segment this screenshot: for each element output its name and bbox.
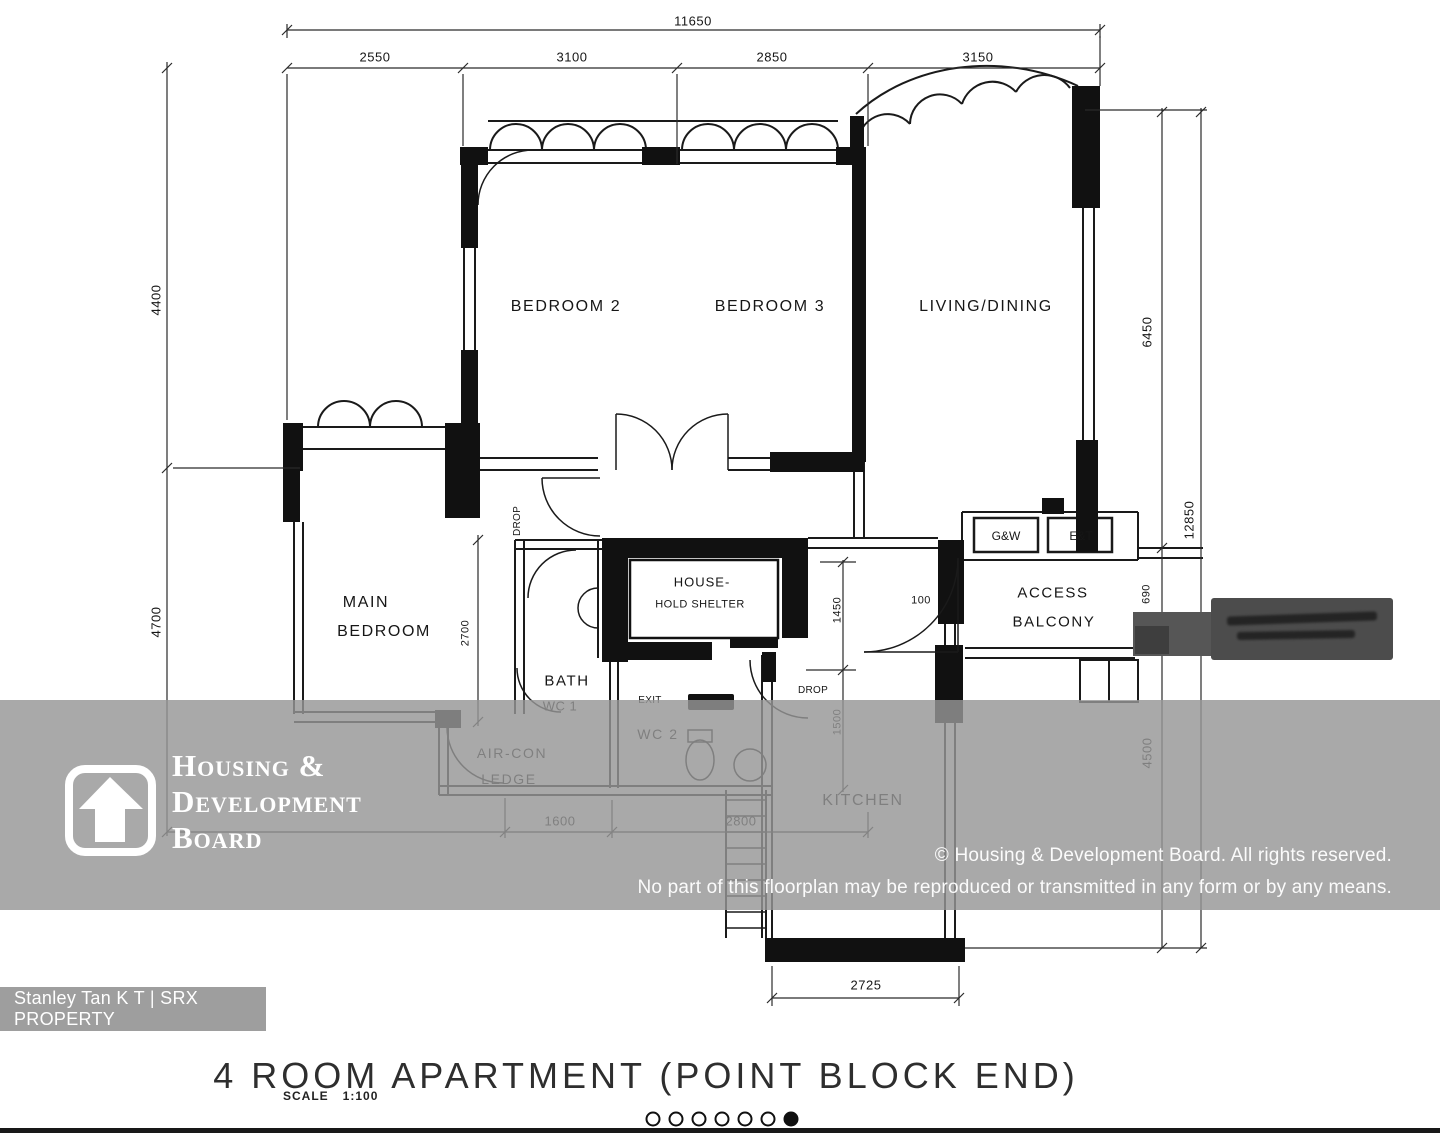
hdb-logo-icon bbox=[64, 764, 157, 857]
level-mark-label: 100 bbox=[911, 596, 931, 607]
sign-scribble bbox=[1227, 611, 1377, 625]
room-label-bedroom3: BEDROOM 3 bbox=[715, 299, 825, 315]
carousel-dot-6[interactable] bbox=[761, 1112, 776, 1127]
scale-label: SCALE bbox=[283, 1089, 329, 1103]
meter-label-et: E&T bbox=[1069, 530, 1092, 542]
dim-top-1: 2550 bbox=[360, 51, 391, 64]
dim-top-total: 11650 bbox=[674, 15, 712, 28]
dim-right-1: 6450 bbox=[1141, 317, 1154, 348]
agent-badge-text: Stanley Tan K T | SRX PROPERTY bbox=[14, 988, 266, 1030]
meter-label-gw: G&W bbox=[992, 530, 1021, 542]
copyright-line2: No part of this floorplan may be reprodu… bbox=[637, 872, 1392, 904]
room-label-access-2: BALCONY bbox=[1013, 615, 1096, 630]
hdb-text-line3: Board bbox=[172, 820, 362, 856]
room-label-household-1: HOUSE- bbox=[674, 576, 731, 589]
drop-label-kitchen: DROP bbox=[798, 686, 828, 696]
carousel-dots bbox=[646, 1112, 799, 1127]
carousel-dot-7[interactable] bbox=[784, 1112, 799, 1127]
dim-bath: 2700 bbox=[461, 620, 472, 646]
copyright-line1: © Housing & Development Board. All right… bbox=[637, 840, 1392, 872]
room-label-bath-1: BATH bbox=[544, 674, 589, 689]
corridor-sign-nub bbox=[1135, 626, 1169, 654]
dim-right-2: 690 bbox=[1142, 584, 1153, 604]
dim-right-total: 12850 bbox=[1183, 501, 1196, 540]
dim-left-1: 4400 bbox=[150, 285, 163, 316]
room-label-household-2: HOLD SHELTER bbox=[655, 600, 745, 611]
floorplan-drawing bbox=[0, 0, 1440, 1133]
bottom-bar bbox=[0, 1128, 1440, 1133]
room-label-living-dining: LIVING/DINING bbox=[919, 299, 1053, 315]
corridor-sign-large bbox=[1211, 598, 1393, 660]
room-label-main-bedroom-2: BEDROOM bbox=[337, 624, 431, 640]
dim-top-3: 2850 bbox=[757, 51, 788, 64]
drop-label-vertical: DROP bbox=[513, 506, 523, 536]
hdb-text-line2: Development bbox=[172, 784, 362, 820]
carousel-dot-1[interactable] bbox=[646, 1112, 661, 1127]
watermark-content: Housing & Development Board © Housing & … bbox=[0, 700, 1440, 910]
carousel-dot-2[interactable] bbox=[669, 1112, 684, 1127]
copyright-notice: © Housing & Development Board. All right… bbox=[637, 840, 1392, 904]
dim-top-4: 3150 bbox=[963, 51, 994, 64]
carousel-dot-3[interactable] bbox=[692, 1112, 707, 1127]
room-label-main-bedroom-1: MAIN bbox=[343, 595, 389, 611]
carousel-dot-4[interactable] bbox=[715, 1112, 730, 1127]
sign-scribble bbox=[1237, 630, 1355, 640]
room-label-bedroom2: BEDROOM 2 bbox=[511, 299, 621, 315]
agent-badge: Stanley Tan K T | SRX PROPERTY bbox=[0, 987, 266, 1031]
floorplan-viewer: 11650 2550 3100 2850 3150 4400 4700 6450… bbox=[0, 0, 1440, 1133]
dim-left-2: 4700 bbox=[150, 607, 163, 638]
dim-kitchen: 2725 bbox=[851, 979, 882, 992]
room-label-access-1: ACCESS bbox=[1017, 586, 1088, 601]
carousel-dot-5[interactable] bbox=[738, 1112, 753, 1127]
scale-value: 1:100 bbox=[343, 1089, 379, 1103]
dim-mid-1: 1450 bbox=[833, 597, 844, 623]
dim-top-2: 3100 bbox=[557, 51, 588, 64]
scale-note: SCALE1:100 bbox=[283, 1089, 378, 1103]
hdb-text-line1: Housing & bbox=[172, 748, 362, 784]
hdb-logo-text: Housing & Development Board bbox=[172, 748, 362, 856]
